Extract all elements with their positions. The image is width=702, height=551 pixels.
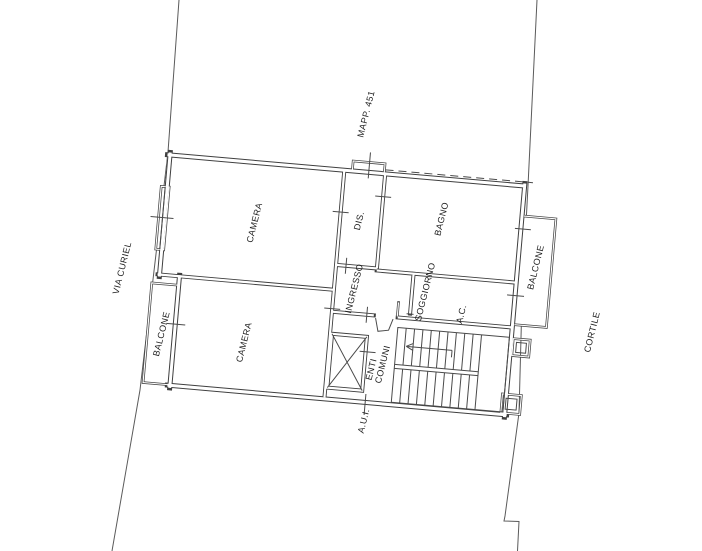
floor-plan-canvas: CAMERA CAMERA BALCONE DIS. INGRESSO BAGN… xyxy=(0,0,702,551)
wall-end-cap xyxy=(407,314,414,315)
label-aui: A.U.I. xyxy=(356,408,372,435)
label-mappale: MAPP. 451 xyxy=(355,90,376,139)
label-cortile: CORTILE xyxy=(582,311,602,354)
building-plan: CAMERA CAMERA BALCONE DIS. INGRESSO BAGN… xyxy=(133,134,560,449)
building-footprint xyxy=(147,152,527,418)
floor-plan-drawing: CAMERA CAMERA BALCONE DIS. INGRESSO BAGN… xyxy=(0,0,702,551)
label-via-curiel: VIA CURIEL xyxy=(111,241,134,295)
